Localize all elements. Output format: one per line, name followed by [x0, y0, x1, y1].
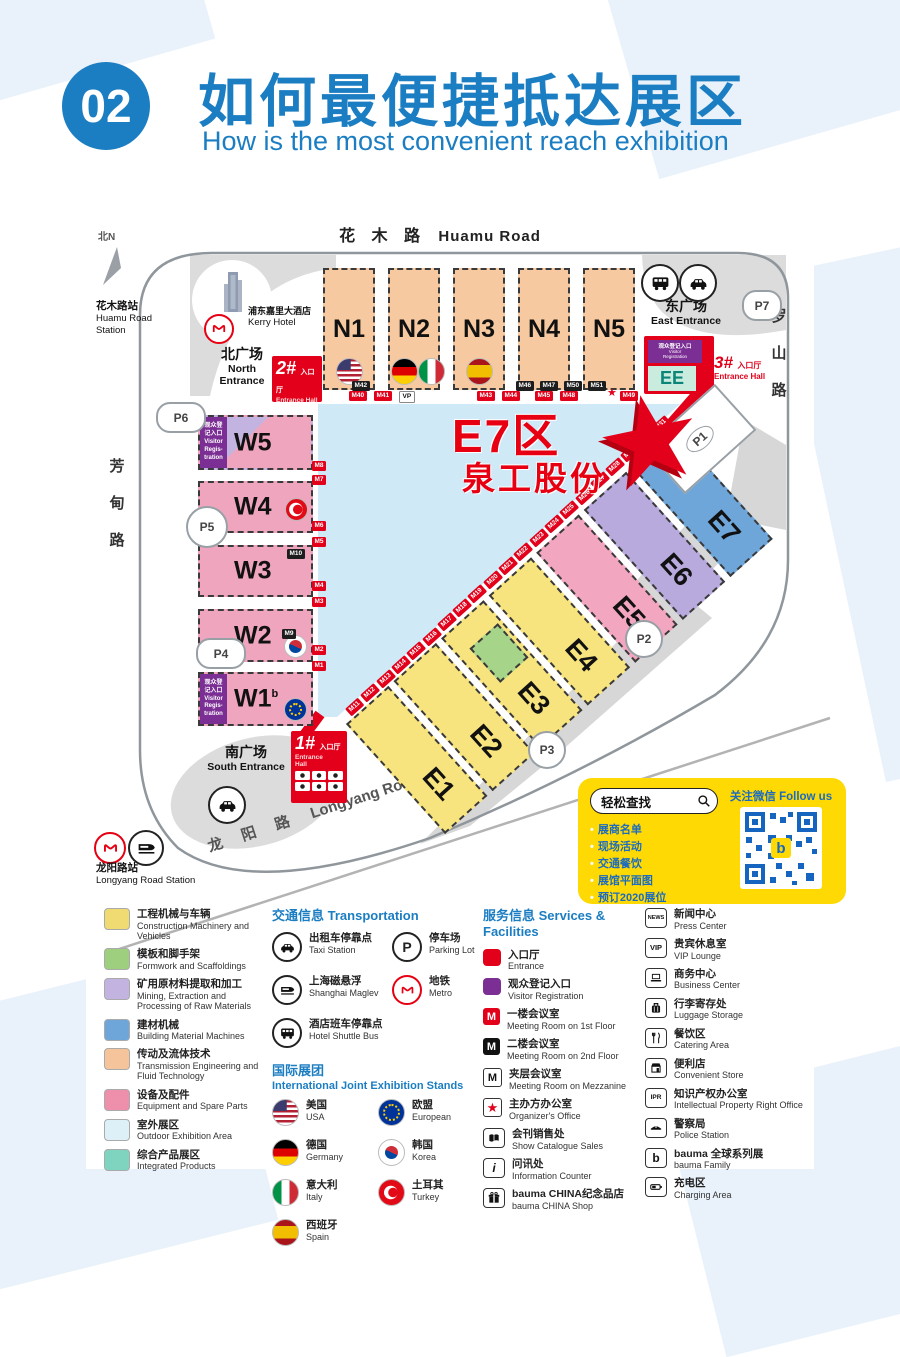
hall-label: W5 — [234, 428, 272, 457]
police-en: Police Station — [674, 1130, 729, 1140]
taxi-icon — [272, 932, 302, 962]
transport-header: 交通信息 Transportation — [272, 908, 478, 924]
korea-en: Korea — [412, 1152, 436, 1162]
east-plaza-en: East Entrance — [632, 315, 740, 328]
entrance-item: 入口厅Entrance — [483, 949, 641, 972]
flags-grid: 美国USA 欧盟European 德国Germany 韩国Korea 意大利It… — [272, 1099, 478, 1253]
south-plaza-zh: 南广场 — [186, 744, 306, 761]
maglev-train-icon — [128, 830, 164, 866]
bauma-zh: bauma 全球系列展 — [674, 1148, 763, 1161]
east-plaza-zh: 东广场 — [632, 298, 740, 315]
qr-center-logo: b — [776, 840, 785, 857]
service-icon — [295, 782, 310, 791]
category-zh: 综合产品展区 — [137, 1149, 216, 1162]
turkey-flag-icon — [378, 1179, 405, 1206]
kerry-hotel-en: Kerry Hotel — [248, 317, 334, 329]
bauma-item: b bauma 全球系列展bauma Family — [645, 1148, 811, 1171]
hall-w1-sup: b — [272, 688, 279, 700]
legend-category-row: 建材机械 Building Material Machines — [104, 1019, 269, 1042]
hall-label: W4 — [234, 493, 272, 522]
shop-item: bauma CHINA纪念品店bauma CHINA Shop — [483, 1188, 641, 1211]
service-icon — [328, 771, 343, 780]
m-badge: M8 — [312, 461, 326, 471]
korea-item: 韩国Korea — [378, 1139, 478, 1166]
visitor-en: Visitor Registration — [508, 991, 583, 1001]
legend-transport: 交通信息 Transportation 出租车停靠点Taxi Station P… — [272, 908, 478, 1253]
meeting2-en: Meeting Room on 2nd Floor — [507, 1051, 619, 1061]
news-icon: NEWS — [645, 908, 667, 928]
police-cap-icon — [645, 1118, 667, 1138]
entrance2-block: 2# 入口厅 Entrance Hall — [272, 356, 322, 402]
section-number-badge: 02 — [62, 62, 150, 150]
meeting-mezzanine-item: M 夹层会议室Meeting Room on Mezzanine — [483, 1068, 641, 1091]
catalogue-book-icon — [483, 1128, 505, 1148]
hall-label: N2 — [398, 315, 430, 344]
catalogue-en: Show Catalogue Sales — [512, 1141, 603, 1151]
info-box-right: 关注微信 Follow us b — [726, 788, 836, 896]
hotel-building-icon — [222, 270, 244, 319]
m-badge: M48 — [560, 391, 578, 401]
legend-category-row: 矿用原材料提取和加工 Mining, Extraction and Proces… — [104, 978, 269, 1011]
organizer-zh: 主办方办公室 — [509, 1098, 581, 1111]
catalogue-zh: 会刊销售处 — [512, 1128, 603, 1141]
hall-label: E6 — [647, 540, 706, 600]
shop-zh: bauma CHINA纪念品店 — [512, 1188, 624, 1201]
meeting2-zh: 二楼会议室 — [507, 1038, 619, 1051]
transport-title-en: Transportation — [328, 908, 419, 923]
category-zh: 室外展区 — [137, 1119, 232, 1132]
store-item: 便利店Convenient Store — [645, 1058, 811, 1081]
entrance1-zh: 入口厅 — [319, 744, 340, 751]
legend-color-chip — [104, 978, 130, 1000]
spain-en: Spain — [306, 1232, 338, 1242]
m-badge: M10 — [287, 549, 305, 559]
legend-categories: 工程机械与车辆 Construction Machinery and Vehic… — [104, 908, 269, 1179]
legend-category-text: 设备及配件 Equipment and Spare Parts — [137, 1089, 248, 1112]
m-badge: M41 — [374, 391, 392, 401]
maglev-zh: 上海磁悬浮 — [309, 975, 379, 988]
parking-item: P 停车场Parking Lot — [392, 932, 478, 962]
charging-en: Charging Area — [674, 1190, 732, 1200]
gift-icon — [483, 1188, 505, 1208]
shuttle-bus-icon — [272, 1018, 302, 1048]
parking-p7: P7 — [742, 290, 782, 321]
taxi-item: 出租车停靠点Taxi Station — [272, 932, 390, 962]
hall-label: E3 — [504, 668, 563, 728]
germany-zh: 德国 — [306, 1139, 343, 1152]
shuttle-item: 酒店班车停靠点Hotel Shuttle Bus — [272, 1018, 390, 1048]
category-en: Construction Machinery and Vehicles — [137, 921, 269, 942]
entrance3-en: Entrance Hall — [714, 373, 765, 381]
legend-category-row: 室外展区 Outdoor Exhibition Area — [104, 1119, 269, 1142]
longyang-station-en: Longyang Road Station — [96, 875, 195, 887]
italy-flag-icon — [418, 358, 445, 385]
hall-label: W3 — [234, 557, 272, 586]
legend-category-text: 传动及流体技术 Transmission Engineering and Flu… — [137, 1048, 269, 1081]
service-icon — [295, 771, 310, 780]
wechat-info-box: 轻松查找 展商名单现场活动交通餐饮展馆平面图预订2020展位 关注微信 Foll… — [578, 778, 846, 904]
parking-p2: P2 — [625, 620, 663, 658]
page-subtitle: How is the most convenient reach exhibit… — [202, 126, 729, 157]
metro-icon — [392, 975, 422, 1005]
category-zh: 设备及配件 — [137, 1089, 248, 1102]
legend-facilities: NEWS 新闻中心Press Center VIP 贵宾休息室VIP Loung… — [645, 908, 811, 1207]
vreg-line: Visitor — [204, 696, 223, 703]
entrance1-block: 1# 入口厅 Entrance Hall — [291, 731, 347, 803]
catering-en: Catering Area — [674, 1040, 729, 1050]
category-zh: 矿用原材料提取和加工 — [137, 978, 269, 991]
legend-color-chip — [104, 1048, 130, 1070]
info-box-item: 预订2020展位 — [590, 890, 718, 907]
entrance-en: Entrance — [508, 961, 544, 971]
legend-color-chip — [104, 948, 130, 970]
utensils-icon — [645, 1028, 667, 1048]
info-box-item: 展馆平面图 — [590, 873, 718, 890]
luoshan-char: 山 — [768, 342, 790, 363]
italy-en: Italy — [306, 1192, 338, 1202]
usa-flag-icon — [272, 1099, 299, 1126]
category-zh: 建材机械 — [137, 1019, 245, 1032]
luggage-en: Luggage Storage — [674, 1010, 743, 1020]
store-en: Convenient Store — [674, 1070, 744, 1080]
battery-icon — [645, 1177, 667, 1197]
taxi-zh: 出租车停靠点 — [309, 932, 372, 945]
meeting2-item: M 二楼会议室Meeting Room on 2nd Floor — [483, 1038, 641, 1061]
service-icon — [328, 782, 343, 791]
legend-color-chip — [104, 1089, 130, 1111]
follow-us-label: 关注微信 Follow us — [726, 788, 836, 804]
eu-zh: 欧盟 — [412, 1099, 451, 1112]
bauma-icon: b — [645, 1148, 667, 1168]
meeting1-zh: 一楼会议室 — [507, 1008, 616, 1021]
turkey-item: 土耳其Turkey — [378, 1179, 478, 1206]
visitor-zh: 观众登记入口 — [508, 978, 583, 991]
huamu-station-zh: 花木路站 — [96, 300, 152, 313]
wechat-qr-code: b — [740, 807, 822, 889]
hall-w5: 观众登 记入口 Visitor Regis- tration W5 — [198, 415, 313, 470]
parking-p3: P3 — [528, 731, 566, 769]
huamu-station-en1: Huamu Road — [96, 313, 152, 325]
visitor-registration-east: 观众登记入口 Visitor Registration — [648, 340, 702, 363]
m-badge: M9 — [282, 629, 296, 639]
italy-item: 意大利Italy — [272, 1179, 376, 1206]
m-badge: M3 — [312, 597, 326, 607]
m-badge: M40 — [349, 391, 367, 401]
shuttle-en: Hotel Shuttle Bus — [309, 1031, 383, 1041]
metro-en: Metro — [429, 988, 452, 998]
m-badge: M46 — [516, 381, 534, 391]
services-header: 服务信息 Services & Facilities — [483, 908, 641, 941]
korea-zh: 韩国 — [412, 1139, 436, 1152]
legend-category-row: 综合产品展区 Integrated Products — [104, 1149, 269, 1172]
international-title-zh: 国际展团 — [272, 1063, 478, 1079]
organizer-star-icon: ★ — [483, 1098, 502, 1117]
eu-flag-icon — [378, 1099, 405, 1126]
service-icon — [312, 771, 327, 780]
legend-color-chip — [104, 1149, 130, 1171]
information-item: i 问讯处Information Counter — [483, 1158, 641, 1181]
hall-label: E2 — [457, 711, 516, 771]
business-item: 商务中心Business Center — [645, 968, 811, 991]
hall-label: N5 — [593, 315, 625, 344]
ipr-zh: 知识产权办公室 — [674, 1088, 803, 1101]
compass-label: 北N — [98, 228, 115, 243]
fangdian-road-label: 芳 甸 路 — [106, 455, 128, 566]
category-zh: 工程机械与车辆 — [137, 908, 269, 921]
east-entrance-label: 东广场 East Entrance — [632, 298, 740, 327]
vreg-line: 观众登 — [204, 680, 222, 687]
police-zh: 警察局 — [674, 1118, 729, 1131]
meetingm-zh: 夹层会议室 — [509, 1068, 626, 1081]
spacer — [392, 1018, 478, 1055]
korea-flag-icon — [378, 1139, 405, 1166]
vreg-line: Visitor — [204, 439, 223, 446]
meetingm-en: Meeting Room on Mezzanine — [509, 1081, 626, 1091]
bus-icon — [641, 264, 679, 302]
info-box-item: 现场活动 — [590, 839, 718, 856]
huamu-road-en: Huamu Road — [438, 228, 541, 245]
italy-flag-icon — [272, 1179, 299, 1206]
m-badge: M42 — [352, 381, 370, 391]
hall-label: N4 — [528, 315, 560, 344]
category-en: Equipment and Spare Parts — [137, 1101, 248, 1111]
turkey-zh: 土耳其 — [412, 1179, 444, 1192]
bauma-en: bauma Family — [674, 1160, 763, 1170]
search-icon — [697, 794, 711, 808]
entrance2-number: 2# — [276, 358, 296, 378]
hall-w1-text: W1 — [234, 685, 272, 713]
m-badge: M1 — [312, 661, 326, 671]
vreg-line: 记入口 — [204, 688, 222, 695]
catalogue-item: 会刊销售处Show Catalogue Sales — [483, 1128, 641, 1151]
meeting-room-2f-icon: M — [483, 1038, 500, 1055]
store-zh: 便利店 — [674, 1058, 744, 1071]
search-label: 轻松查找 — [601, 792, 651, 811]
vp-badge: VP — [399, 391, 415, 403]
spain-zh: 西班牙 — [306, 1219, 338, 1232]
info-box-items: 展商名单现场活动交通餐饮展馆平面图预订2020展位 — [590, 822, 718, 907]
metro-zh: 地铁 — [429, 975, 452, 988]
germany-item: 德国Germany — [272, 1139, 376, 1166]
m-badge: M6 — [312, 521, 326, 531]
entrance-chip — [483, 949, 501, 966]
hall-label: W1b — [234, 685, 278, 714]
turkey-flag-icon — [285, 498, 308, 521]
visitor-registration-w1: 观众登 记入口 Visitor Regis- tration — [200, 674, 227, 724]
category-en: Formwork and Scaffoldings — [137, 961, 246, 971]
info-box-item: 交通餐饮 — [590, 856, 718, 873]
car-icon — [208, 786, 246, 824]
luggage-item: 行李寄存处Luggage Storage — [645, 998, 811, 1021]
legend-category-text: 工程机械与车辆 Construction Machinery and Vehic… — [137, 908, 269, 941]
info-en: Information Counter — [512, 1171, 592, 1181]
eu-en: European — [412, 1112, 451, 1122]
news-en: Press Center — [674, 921, 727, 931]
vreg-line: 观众登 — [204, 423, 222, 430]
vreg-line: Regis- — [204, 703, 222, 710]
germany-en: Germany — [306, 1152, 343, 1162]
legend-category-text: 建材机械 Building Material Machines — [137, 1019, 245, 1042]
visitor-item: 观众登记入口Visitor Registration — [483, 978, 641, 1001]
highlight-company-label: 泉工股份 — [462, 452, 606, 500]
m-badge: M2 — [312, 645, 326, 655]
longyang-station-label: 龙阳路站 Longyang Road Station — [96, 862, 195, 887]
press-item: NEWS 新闻中心Press Center — [645, 908, 811, 931]
category-en: Building Material Machines — [137, 1031, 245, 1041]
entrance3-label: 3# 入口厅 Entrance Hall — [714, 354, 765, 381]
legend-color-chip — [104, 908, 130, 930]
parking-p6: P6 — [156, 402, 206, 433]
hall-w1: 观众登 记入口 Visitor Regis- tration W1b — [198, 672, 313, 726]
category-en: Transmission Engineering and Fluid Techn… — [137, 1061, 269, 1082]
spain-item: 西班牙Spain — [272, 1219, 376, 1246]
m-badge: M50 — [564, 381, 582, 391]
parking-zh: 停车场 — [429, 932, 475, 945]
parking-p4: P4 — [196, 638, 246, 669]
service-icon — [312, 782, 327, 791]
legend-category-text: 综合产品展区 Integrated Products — [137, 1149, 216, 1172]
metro-item: 地铁Metro — [392, 975, 478, 1005]
m-badge: M47 — [540, 381, 558, 391]
turkey-en: Turkey — [412, 1192, 444, 1202]
meeting-room-mezzanine-icon: M — [483, 1068, 502, 1087]
category-en: Mining, Extraction and Processing of Raw… — [137, 991, 269, 1012]
kerry-hotel-zh: 浦东嘉里大酒店 — [248, 306, 334, 317]
charging-zh: 充电区 — [674, 1177, 732, 1190]
legend-services: 服务信息 Services & Facilities 入口厅Entrance 观… — [483, 908, 641, 1218]
store-icon — [645, 1058, 667, 1078]
transport-title-zh: 交通信息 — [272, 908, 324, 923]
vip-icon: VIP — [645, 938, 667, 958]
germany-flag-icon — [391, 358, 418, 385]
legend-category-text: 室外展区 Outdoor Exhibition Area — [137, 1119, 232, 1142]
metro-icon — [94, 832, 126, 864]
m-badge: M5 — [312, 537, 326, 547]
info-box-item: 展商名单 — [590, 822, 718, 839]
huamu-station-en2: Station — [96, 325, 152, 337]
transport-grid: 出租车停靠点Taxi Station P 停车场Parking Lot 上海磁悬… — [272, 932, 478, 1055]
laptop-icon — [645, 968, 667, 988]
spain-flag-icon — [272, 1219, 299, 1246]
huamu-station-label: 花木路站 Huamu Road Station — [96, 300, 152, 337]
legend-category-text: 模板和脚手架 Formwork and Scaffoldings — [137, 948, 246, 971]
search-box[interactable]: 轻松查找 — [590, 788, 718, 814]
spain-flag-icon — [466, 358, 493, 385]
luoshan-road-label: 罗 山 路 — [768, 305, 790, 416]
south-plaza-en: South Entrance — [186, 761, 306, 774]
meeting1-item: M 一楼会议室Meeting Room on 1st Floor — [483, 1008, 641, 1031]
italy-zh: 意大利 — [306, 1179, 338, 1192]
police-item: 警察局Police Station — [645, 1118, 811, 1141]
category-en: Outdoor Exhibition Area — [137, 1131, 232, 1141]
legend-color-chip — [104, 1019, 130, 1041]
fangdian-char: 芳 — [106, 455, 128, 476]
legend-category-row: 传动及流体技术 Transmission Engineering and Flu… — [104, 1048, 269, 1081]
legend-category-row: 设备及配件 Equipment and Spare Parts — [104, 1089, 269, 1112]
vreg-line: tration — [204, 455, 223, 462]
hall-n: N5 — [583, 268, 635, 390]
luoshan-char: 路 — [768, 379, 790, 400]
international-title-en: International Joint Exhibition Stands — [272, 1080, 478, 1094]
category-en: Integrated Products — [137, 1161, 216, 1171]
ipr-en: Intellectual Property Right Office — [674, 1100, 803, 1110]
taxi-en: Taxi Station — [309, 945, 372, 955]
vip-zh: 贵宾休息室 — [674, 938, 727, 951]
ipr-item: IPR 知识产权办公室Intellectual Property Right O… — [645, 1088, 811, 1111]
info-box-left: 轻松查找 展商名单现场活动交通餐饮展馆平面图预订2020展位 — [590, 788, 718, 896]
catering-zh: 餐饮区 — [674, 1028, 729, 1041]
charging-item: 充电区Charging Area — [645, 1177, 811, 1200]
hall-n: N4 — [518, 268, 570, 390]
parking-en: Parking Lot — [429, 945, 475, 955]
car-icon — [679, 264, 717, 302]
international-header: 国际展团 International Joint Exhibition Stan… — [272, 1063, 478, 1093]
eu-flag-icon — [284, 698, 307, 721]
germany-flag-icon — [272, 1139, 299, 1166]
luggage-icon — [645, 998, 667, 1018]
legend-category-row: 模板和脚手架 Formwork and Scaffoldings — [104, 948, 269, 971]
meeting1-en: Meeting Room on 1st Floor — [507, 1021, 616, 1031]
hall-label: N3 — [463, 315, 495, 344]
entrance3-number: 3# — [714, 353, 733, 372]
legend-color-chip — [104, 1119, 130, 1141]
huamu-road-zh: 花 木 路 — [339, 228, 426, 245]
entrance1-number: 1# — [295, 733, 315, 753]
organizer-item: ★ 主办方办公室Organizer's Office — [483, 1098, 641, 1121]
visitor-chip — [483, 978, 501, 995]
news-zh: 新闻中心 — [674, 908, 727, 921]
entrance1-en1: Entrance — [295, 754, 343, 761]
longyang-station-zh: 龙阳路站 — [96, 862, 195, 875]
entrance3-zh: 入口厅 — [737, 361, 761, 370]
visitor-reg-en2: Registration — [663, 355, 687, 360]
usa-item: 美国USA — [272, 1099, 376, 1126]
catering-item: 餐饮区Catering Area — [645, 1028, 811, 1051]
entrance1-en2: Hall — [295, 761, 343, 768]
info-zh: 问讯处 — [512, 1158, 592, 1171]
category-zh: 传动及流体技术 — [137, 1048, 269, 1061]
vreg-line: 记入口 — [204, 431, 222, 438]
entrance-zh: 入口厅 — [508, 949, 544, 962]
luggage-zh: 行李寄存处 — [674, 998, 743, 1011]
category-zh: 模板和脚手架 — [137, 948, 246, 961]
usa-zh: 美国 — [306, 1099, 327, 1112]
vreg-line: Regis- — [204, 447, 222, 454]
fangdian-char: 甸 — [106, 492, 128, 513]
eu-item: 欧盟European — [378, 1099, 478, 1126]
business-zh: 商务中心 — [674, 968, 740, 981]
m-badge: M4 — [312, 581, 326, 591]
usa-en: USA — [306, 1112, 327, 1122]
maglev-icon — [272, 975, 302, 1005]
hall-label: E7 — [695, 497, 754, 557]
legend-category-row: 工程机械与车辆 Construction Machinery and Vehic… — [104, 908, 269, 941]
entrance2-en: Entrance Hall — [276, 397, 318, 404]
fangdian-char: 路 — [106, 529, 128, 550]
hall-label: N1 — [333, 315, 365, 344]
parking-p5: P5 — [186, 506, 228, 548]
parking-icon: P — [392, 932, 422, 962]
vip-item: VIP 贵宾休息室VIP Lounge — [645, 938, 811, 961]
south-entrance-label: 南广场 South Entrance — [186, 744, 306, 773]
maglev-en: Shanghai Maglev — [309, 988, 379, 998]
m-badge: M7 — [312, 475, 326, 485]
information-icon: i — [483, 1158, 505, 1178]
legend-category-text: 矿用原材料提取和加工 Mining, Extraction and Proces… — [137, 978, 269, 1011]
meeting-room-1f-icon: M — [483, 1008, 500, 1025]
organizer-en: Organizer's Office — [509, 1111, 581, 1121]
huamu-road-label: 花 木 路 Huamu Road — [290, 222, 590, 246]
